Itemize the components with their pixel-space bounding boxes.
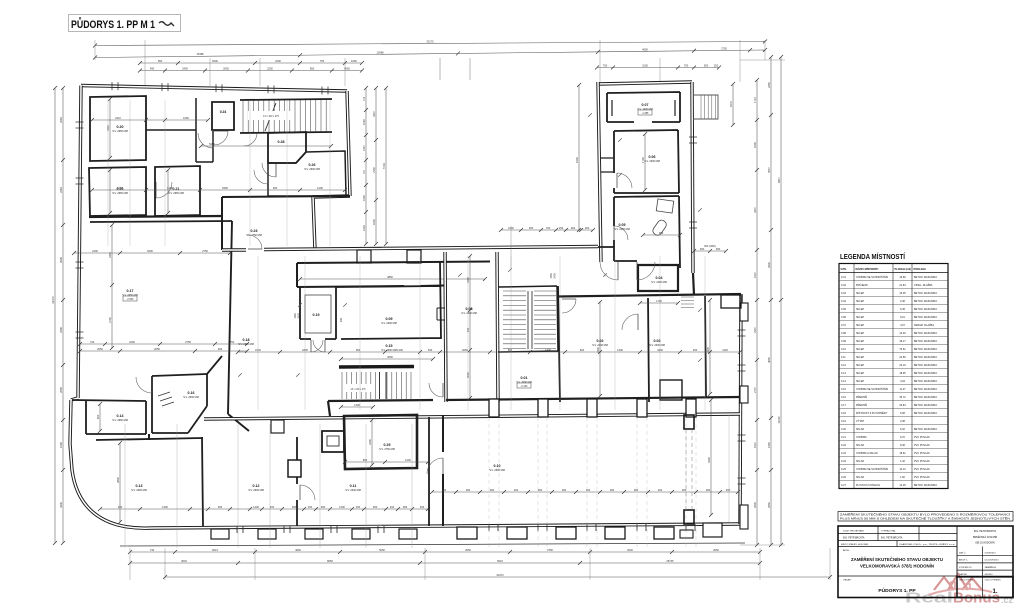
svg-text:12,06: 12,06 bbox=[899, 484, 906, 487]
svg-text:BETON. MAZANINA: BETON. MAZANINA bbox=[914, 340, 937, 343]
svg-text:5450: 5450 bbox=[209, 142, 215, 146]
svg-text:0.02: 0.02 bbox=[841, 284, 846, 287]
svg-text:740: 740 bbox=[90, 340, 95, 344]
svg-text:800: 800 bbox=[508, 348, 513, 352]
svg-text:14,10: 14,10 bbox=[899, 468, 906, 471]
svg-text:13 x 160 x 275: 13 x 160 x 275 bbox=[263, 115, 279, 118]
svg-text:12150: 12150 bbox=[777, 416, 781, 424]
svg-text:2307: 2307 bbox=[753, 327, 757, 333]
svg-text:6100: 6100 bbox=[575, 157, 579, 163]
svg-text:BETON. MAZANINA: BETON. MAZANINA bbox=[914, 388, 937, 391]
svg-text:0.06: 0.06 bbox=[649, 155, 656, 159]
svg-text:2800: 2800 bbox=[116, 477, 120, 483]
svg-text:PRŮJEZD: PRŮJEZD bbox=[856, 284, 868, 287]
svg-text:900: 900 bbox=[273, 186, 278, 190]
svg-text:16,56: 16,56 bbox=[899, 276, 906, 279]
svg-text:0.06: 0.06 bbox=[841, 316, 846, 319]
svg-text:0.12: 0.12 bbox=[841, 364, 846, 367]
svg-text:740: 740 bbox=[150, 548, 155, 552]
svg-text:900: 900 bbox=[716, 247, 721, 251]
svg-text:S.V. 2650 MM: S.V. 2650 MM bbox=[112, 130, 128, 133]
svg-text:0.04: 0.04 bbox=[656, 276, 663, 280]
svg-text:0.18: 0.18 bbox=[841, 412, 846, 415]
svg-text:2564: 2564 bbox=[59, 117, 63, 123]
svg-text:2050: 2050 bbox=[713, 548, 719, 552]
svg-text:0.04: 0.04 bbox=[841, 300, 846, 303]
svg-text:PVC POVLAK: PVC POVLAK bbox=[914, 460, 930, 463]
svg-text:1400: 1400 bbox=[354, 403, 360, 407]
svg-text:BETON. MAZANINA: BETON. MAZANINA bbox=[914, 396, 937, 399]
svg-text:4060: 4060 bbox=[295, 548, 301, 552]
svg-text:1600: 1600 bbox=[372, 219, 376, 225]
svg-text:900: 900 bbox=[218, 505, 223, 509]
svg-text:0.01: 0.01 bbox=[521, 376, 528, 380]
svg-text:ZAMĚŘENÍ SKUTEČNÉHO STAVU OBJE: ZAMĚŘENÍ SKUTEČNÉHO STAVU OBJEKTU BYLO P… bbox=[840, 513, 1010, 516]
svg-text:5200: 5200 bbox=[212, 59, 218, 63]
svg-text:SKLEP: SKLEP bbox=[856, 380, 864, 383]
svg-text:200: 200 bbox=[585, 226, 590, 230]
svg-text:1040: 1040 bbox=[508, 226, 514, 230]
svg-text:1400: 1400 bbox=[167, 186, 173, 190]
svg-text:6013: 6013 bbox=[212, 548, 218, 552]
svg-text:S.V. 3090 MM: S.V. 3090 MM bbox=[516, 381, 532, 384]
svg-text:ČÍSLO SOUPR.: ČÍSLO SOUPR. bbox=[959, 579, 974, 582]
svg-text:SKLEP: SKLEP bbox=[856, 308, 864, 311]
svg-text:VÝTAH: VÝTAH bbox=[856, 420, 864, 423]
svg-text:2,46: 2,46 bbox=[900, 300, 905, 303]
svg-text:900: 900 bbox=[96, 414, 100, 419]
svg-text:900: 900 bbox=[373, 505, 378, 509]
svg-text:PVC POVLAK: PVC POVLAK bbox=[914, 452, 930, 455]
svg-text:1302: 1302 bbox=[362, 225, 366, 231]
svg-text:S.V. 2650 MM: S.V. 2650 MM bbox=[122, 294, 138, 297]
svg-text:1900: 1900 bbox=[753, 142, 757, 148]
svg-text:0.07: 0.07 bbox=[841, 324, 846, 327]
svg-text:1712: 1712 bbox=[753, 97, 757, 103]
svg-text:ING. PETR BRCHTA: ING. PETR BRCHTA bbox=[843, 536, 865, 539]
svg-text:-1.358: -1.358 bbox=[642, 112, 649, 115]
svg-text:BETON. MAZANINA: BETON. MAZANINA bbox=[914, 372, 937, 375]
svg-text:540: 540 bbox=[428, 348, 433, 352]
svg-text:2400: 2400 bbox=[129, 340, 135, 344]
svg-text:0.14: 0.14 bbox=[117, 414, 124, 418]
svg-text:0.05: 0.05 bbox=[841, 308, 846, 311]
svg-text:ZAMĚŘENÍ SKUTEČNÉHO STAVU OBJE: ZAMĚŘENÍ SKUTEČNÉHO STAVU OBJEKTU bbox=[851, 557, 943, 562]
svg-text:1400: 1400 bbox=[397, 348, 403, 352]
svg-text:BETON. MAZANINA: BETON. MAZANINA bbox=[914, 404, 937, 407]
svg-text:4650: 4650 bbox=[767, 357, 771, 363]
svg-text:21,84: 21,84 bbox=[899, 284, 906, 287]
svg-text:2364: 2364 bbox=[59, 187, 63, 193]
svg-text:ČÍSLO VÝKRESU: ČÍSLO VÝKRESU bbox=[985, 579, 1002, 582]
svg-text:4,04: 4,04 bbox=[900, 380, 905, 383]
svg-text:S.V. 2640 MM: S.V. 2640 MM bbox=[345, 489, 361, 492]
svg-text:PŘEDSÍŇ: PŘEDSÍŇ bbox=[856, 396, 867, 399]
svg-text:ZAMĚŘENÍ: ZAMĚŘENÍ bbox=[985, 566, 997, 569]
svg-text:VYPRACOVAL: VYPRACOVAL bbox=[881, 529, 896, 532]
svg-text:0.16: 0.16 bbox=[841, 396, 846, 399]
svg-text:4400: 4400 bbox=[657, 348, 663, 352]
svg-text:2,38: 2,38 bbox=[900, 420, 905, 423]
svg-text:75,61: 75,61 bbox=[899, 348, 906, 351]
svg-text:1400: 1400 bbox=[162, 505, 168, 509]
svg-text:0.14: 0.14 bbox=[841, 380, 846, 383]
svg-text:13 x 140 x 275: 13 x 140 x 275 bbox=[350, 389, 366, 391]
svg-text:0.22: 0.22 bbox=[841, 444, 846, 447]
svg-text:2750: 2750 bbox=[108, 317, 112, 323]
svg-text:2400: 2400 bbox=[92, 249, 98, 253]
svg-text:1062: 1062 bbox=[362, 195, 366, 201]
svg-text:0.20: 0.20 bbox=[841, 428, 846, 431]
svg-text:940: 940 bbox=[150, 66, 155, 70]
svg-text:ING. PETR BRCHTA: ING. PETR BRCHTA bbox=[881, 536, 903, 539]
svg-text:2456: 2456 bbox=[59, 327, 63, 333]
svg-text:1670: 1670 bbox=[729, 101, 733, 107]
svg-text:MÍSTO STAVBY: HODONÍN: MÍSTO STAVBY: HODONÍN bbox=[841, 543, 869, 546]
svg-text:BRNĚNSKÁ 4154/15B: BRNĚNSKÁ 4154/15B bbox=[973, 536, 997, 539]
svg-text:1790: 1790 bbox=[656, 299, 662, 303]
svg-text:900: 900 bbox=[292, 505, 297, 509]
svg-text:S.V. 1400 MM: S.V. 1400 MM bbox=[637, 108, 653, 111]
svg-text:BETON. MAZANINA: BETON. MAZANINA bbox=[914, 356, 937, 359]
svg-text:400: 400 bbox=[514, 488, 519, 492]
svg-text:0.13: 0.13 bbox=[841, 372, 846, 375]
svg-text:400: 400 bbox=[356, 505, 361, 509]
svg-text:ZODP. PROJEKTANT: ZODP. PROJEKTANT bbox=[843, 529, 865, 532]
svg-text:0.03: 0.03 bbox=[841, 292, 846, 295]
svg-text:.cz: .cz bbox=[1001, 595, 1014, 605]
svg-text:695 01 HODONÍN: 695 01 HODONÍN bbox=[975, 542, 995, 545]
svg-text:0.15: 0.15 bbox=[386, 344, 393, 348]
svg-text:1950: 1950 bbox=[767, 442, 771, 448]
svg-text:ING. PETR BRCHTA: ING. PETR BRCHTA bbox=[974, 530, 997, 533]
svg-text:OZN.: OZN. bbox=[841, 268, 847, 271]
svg-text:5450: 5450 bbox=[222, 186, 228, 190]
svg-text:400: 400 bbox=[308, 505, 313, 509]
svg-text:STUPEŇ PD: STUPEŇ PD bbox=[959, 566, 972, 569]
svg-text:33175: 33175 bbox=[426, 40, 434, 44]
svg-text:1400: 1400 bbox=[545, 348, 551, 352]
svg-text:400: 400 bbox=[270, 505, 275, 509]
svg-text:0.11: 0.11 bbox=[350, 484, 357, 488]
svg-text:CIHEL. DLAŽBA: CIHEL. DLAŽBA bbox=[914, 284, 933, 287]
svg-text:1,60: 1,60 bbox=[900, 476, 905, 479]
svg-text:PŮDORYS 1. PP M 1: PŮDORYS 1. PP M 1 bbox=[71, 17, 155, 31]
svg-text:1060: 1060 bbox=[351, 59, 357, 63]
svg-text:2400: 2400 bbox=[298, 313, 301, 319]
svg-text:ZAK.Č.: ZAK.Č. bbox=[959, 552, 966, 555]
svg-text:0.21: 0.21 bbox=[173, 187, 180, 191]
svg-text:23,16: 23,16 bbox=[899, 364, 906, 367]
svg-text:26,84: 26,84 bbox=[899, 404, 906, 407]
svg-text:S.V. 2300 MM: S.V. 2300 MM bbox=[644, 160, 660, 163]
svg-text:1700: 1700 bbox=[641, 157, 645, 163]
svg-text:0.17: 0.17 bbox=[127, 289, 134, 293]
svg-text:9,01: 9,01 bbox=[900, 316, 905, 319]
svg-text:2450: 2450 bbox=[108, 252, 112, 258]
svg-text:SKLEP: SKLEP bbox=[856, 372, 864, 375]
svg-text:1400: 1400 bbox=[317, 186, 323, 190]
svg-text:0.23: 0.23 bbox=[251, 229, 258, 233]
svg-text:4207: 4207 bbox=[753, 207, 757, 213]
svg-text:18,17: 18,17 bbox=[899, 340, 906, 343]
svg-text:0.18: 0.18 bbox=[243, 338, 250, 342]
svg-text:2400: 2400 bbox=[117, 186, 123, 190]
svg-text:CHODBA SE SCHODIŠTĚM: CHODBA SE SCHODIŠTĚM bbox=[856, 388, 888, 391]
svg-text:0.20: 0.20 bbox=[117, 125, 124, 129]
svg-text:1400: 1400 bbox=[405, 458, 411, 462]
svg-text:6750: 6750 bbox=[547, 548, 553, 552]
svg-text:900: 900 bbox=[634, 488, 639, 492]
svg-text:727: 727 bbox=[362, 169, 366, 174]
svg-text:36,72: 36,72 bbox=[899, 396, 906, 399]
svg-text:BETON. MAZANINA: BETON. MAZANINA bbox=[914, 348, 937, 351]
svg-text:BETON. MAZANINA: BETON. MAZANINA bbox=[914, 292, 937, 295]
svg-text:14,30: 14,30 bbox=[899, 332, 906, 335]
svg-text:400: 400 bbox=[118, 505, 123, 509]
svg-text:900: 900 bbox=[571, 226, 576, 230]
svg-text:0.10: 0.10 bbox=[841, 348, 846, 351]
svg-text:5010: 5010 bbox=[497, 559, 503, 563]
svg-text:11,47: 11,47 bbox=[899, 388, 906, 391]
svg-text:BETON. MAZANINA: BETON. MAZANINA bbox=[914, 300, 937, 303]
svg-text:8,46: 8,46 bbox=[900, 444, 905, 447]
svg-text:2400: 2400 bbox=[182, 66, 188, 70]
svg-text:ARCH Č.: ARCH Č. bbox=[959, 559, 968, 562]
svg-text:S.V. 2750 MM: S.V. 2750 MM bbox=[246, 234, 262, 237]
svg-text:25745: 25745 bbox=[666, 559, 674, 563]
svg-text:S.V. 2650 MM: S.V. 2650 MM bbox=[112, 192, 128, 195]
svg-text:SKLEP: SKLEP bbox=[856, 324, 864, 327]
svg-text:1060: 1060 bbox=[183, 116, 189, 120]
svg-text:0.13: 0.13 bbox=[136, 484, 143, 488]
svg-text:700: 700 bbox=[603, 63, 608, 67]
svg-text:DATUM: DATUM bbox=[959, 573, 967, 576]
svg-text:0.28: 0.28 bbox=[278, 140, 285, 144]
svg-text:0.03: 0.03 bbox=[654, 339, 661, 343]
svg-text:2150: 2150 bbox=[372, 167, 376, 173]
svg-text:900: 900 bbox=[704, 63, 709, 67]
svg-text:0.16: 0.16 bbox=[188, 391, 195, 395]
svg-text:PVC POVLAK: PVC POVLAK bbox=[914, 476, 930, 479]
svg-text:1504: 1504 bbox=[255, 348, 261, 352]
svg-text:900: 900 bbox=[706, 488, 711, 492]
svg-text:2050: 2050 bbox=[154, 347, 160, 351]
svg-text:4050: 4050 bbox=[387, 355, 393, 359]
svg-text:SKLAD: SKLAD bbox=[856, 460, 864, 463]
svg-text:900 (1900): 900 (1900) bbox=[704, 245, 716, 248]
svg-text:0.17: 0.17 bbox=[841, 404, 846, 407]
svg-text:2707: 2707 bbox=[753, 387, 757, 393]
svg-text:S.V. 2600 MM: S.V. 2600 MM bbox=[183, 396, 199, 399]
svg-text:800: 800 bbox=[363, 458, 368, 462]
svg-text:SKLEP: SKLEP bbox=[856, 292, 864, 295]
svg-text:0.19: 0.19 bbox=[313, 313, 320, 317]
svg-text:AKCE :: AKCE : bbox=[843, 549, 851, 552]
svg-text:PŘEDSÍŇ: PŘEDSÍŇ bbox=[856, 404, 867, 407]
svg-text:0.09: 0.09 bbox=[386, 317, 393, 321]
svg-text:SKLEP: SKLEP bbox=[856, 332, 864, 335]
svg-text:SKLEP: SKLEP bbox=[856, 364, 864, 367]
svg-text:1062: 1062 bbox=[362, 119, 366, 125]
svg-text:PLYNOVÁ KOTELNA: PLYNOVÁ KOTELNA bbox=[856, 484, 880, 487]
svg-text:PVC POVLAK: PVC POVLAK bbox=[914, 436, 930, 439]
svg-text:4207: 4207 bbox=[372, 111, 376, 117]
svg-text:2900: 2900 bbox=[767, 262, 771, 268]
svg-text:400: 400 bbox=[420, 505, 425, 509]
svg-text:15488: 15488 bbox=[196, 52, 204, 56]
svg-text:SKLAD: SKLAD bbox=[856, 428, 864, 431]
svg-text:BETON. MAZANINA: BETON. MAZANINA bbox=[914, 316, 937, 319]
svg-text:1400: 1400 bbox=[617, 348, 623, 352]
svg-text:0.21: 0.21 bbox=[841, 436, 846, 439]
svg-text:0.24: 0.24 bbox=[841, 460, 846, 463]
svg-text:750: 750 bbox=[320, 59, 325, 63]
svg-text:1,42: 1,42 bbox=[900, 460, 905, 463]
svg-text:18,61: 18,61 bbox=[899, 452, 906, 455]
svg-text:4650: 4650 bbox=[642, 48, 648, 52]
svg-text:0.07: 0.07 bbox=[642, 103, 649, 107]
svg-text:2200: 2200 bbox=[275, 59, 281, 63]
svg-text:3040: 3040 bbox=[627, 548, 633, 552]
svg-text:4,07: 4,07 bbox=[900, 324, 905, 327]
svg-text:BETON. MAZANINA: BETON. MAZANINA bbox=[914, 412, 937, 415]
svg-text:400: 400 bbox=[726, 488, 731, 492]
svg-text:SKLAD: SKLAD bbox=[856, 444, 864, 447]
svg-text:6,45: 6,45 bbox=[900, 308, 905, 311]
svg-text:1907: 1907 bbox=[753, 442, 757, 448]
svg-text:2450: 2450 bbox=[767, 82, 771, 88]
svg-text:KERAM. DLAŽBA: KERAM. DLAŽBA bbox=[914, 324, 934, 327]
svg-text:0.08: 0.08 bbox=[841, 332, 846, 335]
svg-text:900: 900 bbox=[321, 505, 326, 509]
svg-text:1.: 1. bbox=[992, 589, 997, 595]
svg-text:CHODBA SE SCHODIŠTĚM: CHODBA SE SCHODIŠTĚM bbox=[856, 468, 888, 471]
svg-text:BETON. MAZANINA: BETON. MAZANINA bbox=[914, 308, 937, 311]
svg-text:1805: 1805 bbox=[302, 348, 308, 352]
svg-text:2750: 2750 bbox=[721, 47, 727, 51]
svg-text:700: 700 bbox=[546, 226, 551, 230]
svg-text:SKLEP: SKLEP bbox=[856, 356, 864, 359]
svg-text:NÁZEV MÍSTNOSTI: NÁZEV MÍSTNOSTI bbox=[856, 268, 879, 271]
svg-text:6,08: 6,08 bbox=[900, 412, 905, 415]
svg-text:VLASTNÍK: P.H.D., a.s., TEXTI: VLASTNÍK: P.H.D., a.s., TEXTIL-ODĚVY s.r… bbox=[899, 543, 956, 546]
svg-text:450: 450 bbox=[693, 348, 698, 352]
svg-text:BETON. MAZANINA: BETON. MAZANINA bbox=[914, 364, 937, 367]
svg-text:3100: 3100 bbox=[642, 63, 648, 67]
svg-text:2250: 2250 bbox=[267, 66, 273, 70]
svg-text:0.11: 0.11 bbox=[841, 356, 846, 359]
svg-text:750: 750 bbox=[230, 340, 235, 344]
svg-text:0.15: 0.15 bbox=[841, 388, 846, 391]
svg-text:900: 900 bbox=[562, 488, 567, 492]
svg-text:BETON. MAZANINA: BETON. MAZANINA bbox=[914, 332, 937, 335]
svg-text:S.V. 2650 MM: S.V. 2650 MM bbox=[168, 192, 184, 195]
svg-text:2750: 2750 bbox=[185, 340, 191, 344]
svg-text:BETON. MAZANINA: BETON. MAZANINA bbox=[914, 276, 937, 279]
svg-text:S.V. 2400 MM: S.V. 2400 MM bbox=[461, 312, 477, 315]
svg-text:1400: 1400 bbox=[339, 505, 345, 509]
svg-text:0.26: 0.26 bbox=[309, 163, 316, 167]
svg-text:01-01/09/2010: 01-01/09/2010 bbox=[985, 560, 1000, 562]
svg-text:S.V. 2600 MM: S.V. 2600 MM bbox=[304, 168, 320, 171]
svg-text:5743: 5743 bbox=[382, 163, 386, 169]
svg-text:1907: 1907 bbox=[753, 272, 757, 278]
svg-text:400: 400 bbox=[442, 488, 447, 492]
svg-text:16,35: 16,35 bbox=[899, 292, 906, 295]
svg-text:-0.150: -0.150 bbox=[521, 385, 528, 388]
svg-text:620: 620 bbox=[580, 348, 585, 352]
svg-text:0.26: 0.26 bbox=[841, 476, 846, 479]
svg-text:890: 890 bbox=[310, 66, 315, 70]
svg-text:2950: 2950 bbox=[767, 502, 771, 508]
svg-text:0.19: 0.19 bbox=[841, 420, 846, 423]
svg-text:5200: 5200 bbox=[147, 249, 153, 253]
svg-text:CHODBA: CHODBA bbox=[856, 436, 867, 439]
svg-text:CHODBA A SKLAD: CHODBA A SKLAD bbox=[856, 452, 878, 455]
svg-text:900: 900 bbox=[403, 505, 408, 509]
svg-text:SKLEP: SKLEP bbox=[856, 300, 864, 303]
svg-text:BETON. MAZANINA: BETON. MAZANINA bbox=[914, 428, 937, 431]
svg-text:900: 900 bbox=[340, 317, 343, 322]
svg-text:400: 400 bbox=[390, 505, 395, 509]
svg-text:MÍSTNOST S PLYNOMĚRY: MÍSTNOST S PLYNOMĚRY bbox=[856, 412, 888, 415]
svg-text:12688: 12688 bbox=[376, 51, 384, 55]
svg-text:3604: 3604 bbox=[181, 559, 187, 563]
svg-text:290: 290 bbox=[559, 226, 564, 230]
svg-text:1400: 1400 bbox=[253, 505, 259, 509]
svg-text:S.V. 2400 MM: S.V. 2400 MM bbox=[651, 281, 667, 284]
svg-text:900: 900 bbox=[610, 488, 615, 492]
svg-text:900: 900 bbox=[490, 488, 495, 492]
svg-text:900: 900 bbox=[218, 347, 223, 351]
svg-text:S.V. 2660 MM: S.V. 2660 MM bbox=[112, 419, 128, 422]
svg-text:0.10: 0.10 bbox=[494, 464, 501, 468]
svg-text:PLUS MÍNUS 50 MM S OHLEDEM NA: PLUS MÍNUS 50 MM S OHLEDEM NA SKUTEČNÉ T… bbox=[840, 517, 1010, 520]
svg-text:2650: 2650 bbox=[462, 348, 468, 352]
svg-text:9817: 9817 bbox=[777, 177, 781, 183]
svg-text:VELKOMORAVSKÁ 378/1 HODONÍN: VELKOMORAVSKÁ 378/1 HODONÍN bbox=[860, 564, 934, 569]
svg-text:2410: 2410 bbox=[115, 116, 121, 120]
svg-text:4206: 4206 bbox=[59, 502, 63, 508]
svg-text:5050: 5050 bbox=[379, 548, 385, 552]
svg-text:S.V. 2330 MM: S.V. 2330 MM bbox=[649, 344, 665, 347]
svg-text:1906: 1906 bbox=[59, 442, 63, 448]
svg-text:1100: 1100 bbox=[722, 348, 728, 352]
svg-text:6,32: 6,32 bbox=[900, 428, 905, 431]
svg-text:PVC POVLAK: PVC POVLAK bbox=[914, 444, 930, 447]
svg-text:S.V. 2600 MM: S.V. 2600 MM bbox=[131, 489, 147, 492]
svg-text:0.23: 0.23 bbox=[841, 452, 846, 455]
svg-text:2050: 2050 bbox=[465, 548, 471, 552]
svg-text:18,95: 18,95 bbox=[899, 372, 906, 375]
svg-text:1457: 1457 bbox=[362, 145, 366, 151]
svg-text:SKLEP: SKLEP bbox=[856, 316, 864, 319]
svg-text:BETON. MAZANINA: BETON. MAZANINA bbox=[914, 484, 937, 487]
svg-text:SKLEP: SKLEP bbox=[856, 348, 864, 351]
svg-text:PVC POVLAK: PVC POVLAK bbox=[914, 468, 930, 471]
svg-text:6,70: 6,70 bbox=[900, 436, 905, 439]
svg-text:0.25: 0.25 bbox=[841, 468, 846, 471]
svg-text:S.V. 2600 MM: S.V. 2600 MM bbox=[248, 489, 264, 492]
svg-text:0.25: 0.25 bbox=[384, 443, 391, 447]
svg-text:CHODBA SE SCHODIŠTĚM: CHODBA SE SCHODIŠTĚM bbox=[856, 276, 888, 279]
svg-text:4850: 4850 bbox=[387, 275, 393, 279]
svg-text:0.09: 0.09 bbox=[841, 340, 846, 343]
svg-text:400: 400 bbox=[658, 488, 663, 492]
svg-text:S.V. 2590 MM: S.V. 2590 MM bbox=[489, 469, 505, 472]
svg-text:712: 712 bbox=[362, 96, 366, 101]
